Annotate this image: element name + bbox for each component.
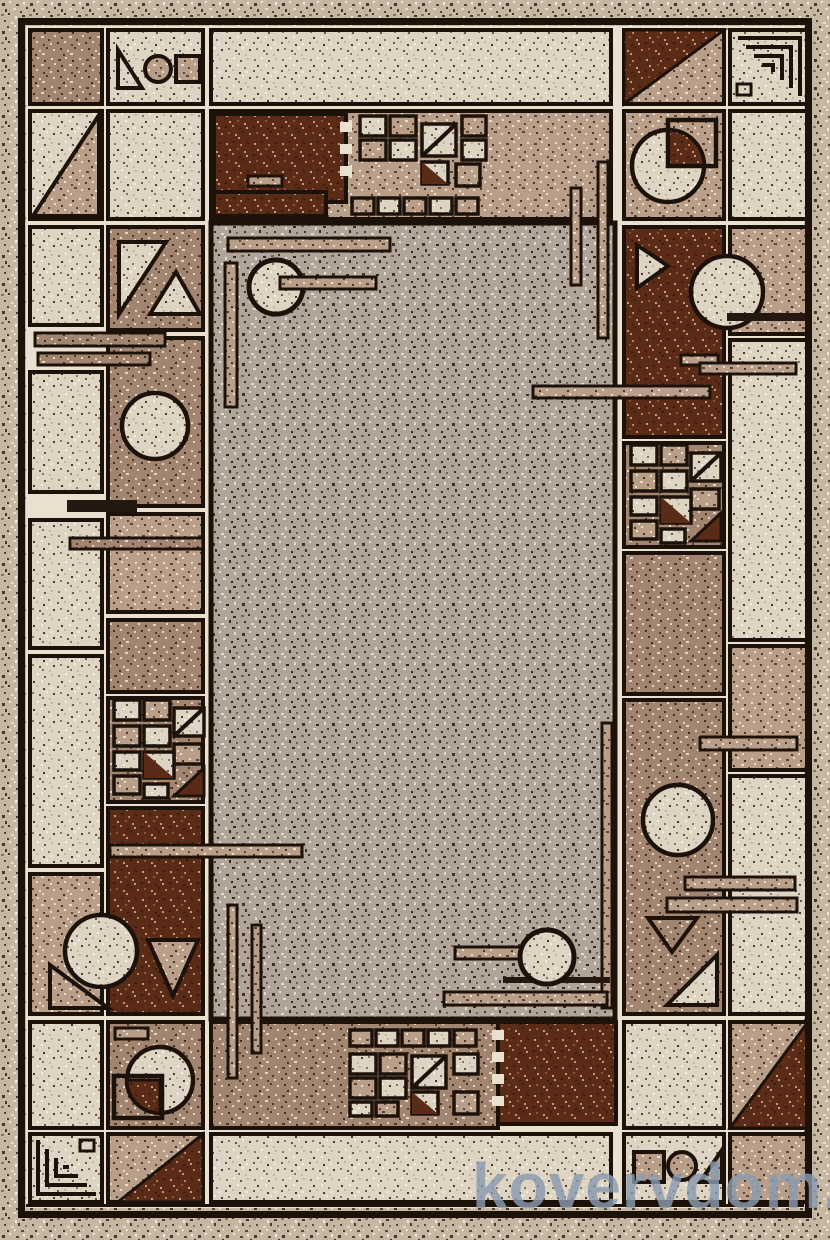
circle-on-brown-icon [122, 393, 188, 459]
rug-photo: kovervdom.ru [0, 0, 830, 1240]
rug-center-field [211, 223, 615, 1019]
rug-photo-svg [0, 0, 830, 1240]
circle-with-bar-icon [520, 930, 574, 984]
